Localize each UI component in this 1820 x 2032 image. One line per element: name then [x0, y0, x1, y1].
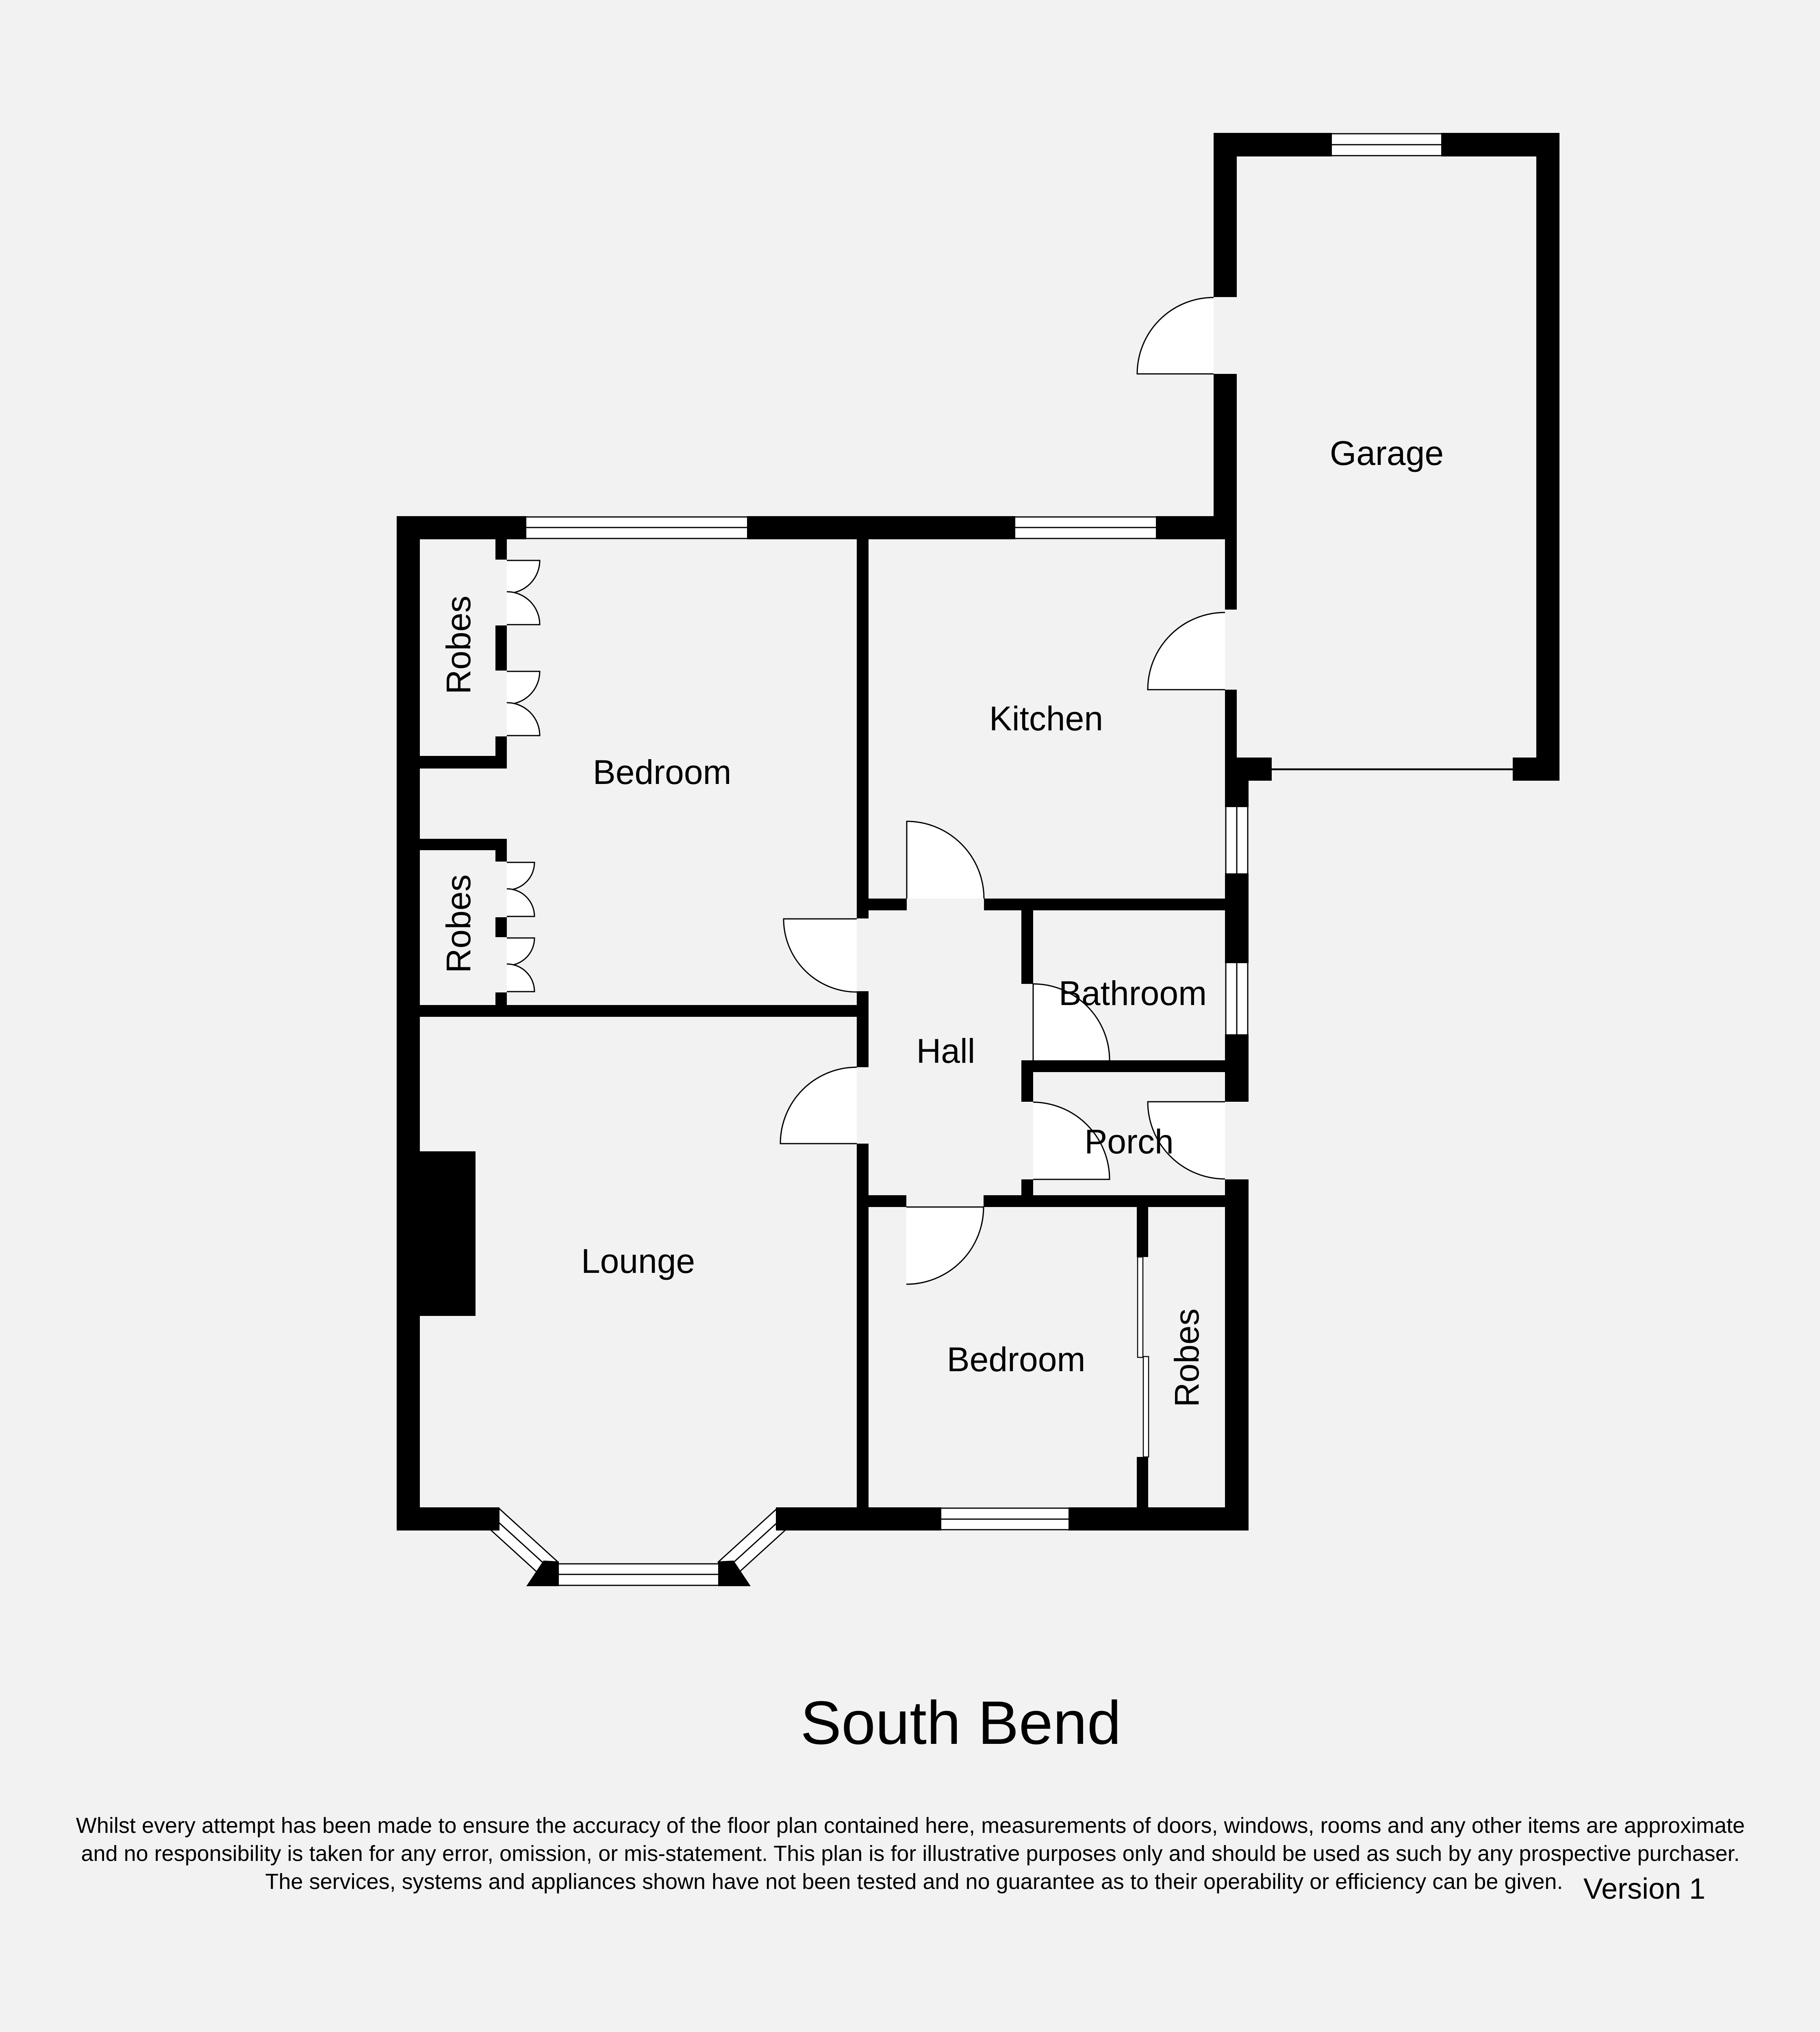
- svg-text:Robes: Robes: [439, 875, 478, 973]
- svg-text:South Bend: South Bend: [800, 1688, 1121, 1757]
- svg-text:Whilst every attempt has been: Whilst every attempt has been made to en…: [76, 1813, 1745, 1838]
- svg-text:The services, systems and appl: The services, systems and appliances sho…: [265, 1869, 1563, 1894]
- svg-text:Kitchen: Kitchen: [989, 699, 1103, 738]
- svg-text:Lounge: Lounge: [581, 1242, 695, 1280]
- svg-text:Bathroom: Bathroom: [1059, 974, 1207, 1012]
- svg-text:Porch: Porch: [1084, 1122, 1173, 1161]
- svg-text:and no responsibility is taken: and no responsibility is taken for any e…: [81, 1841, 1740, 1866]
- svg-text:Robes: Robes: [439, 596, 478, 695]
- svg-text:Bedroom: Bedroom: [947, 1340, 1086, 1379]
- svg-text:Version 1: Version 1: [1583, 1873, 1705, 1905]
- svg-text:Hall: Hall: [917, 1032, 975, 1070]
- svg-text:Robes: Robes: [1168, 1309, 1206, 1407]
- svg-text:Garage: Garage: [1330, 434, 1444, 472]
- svg-text:Bedroom: Bedroom: [593, 753, 732, 791]
